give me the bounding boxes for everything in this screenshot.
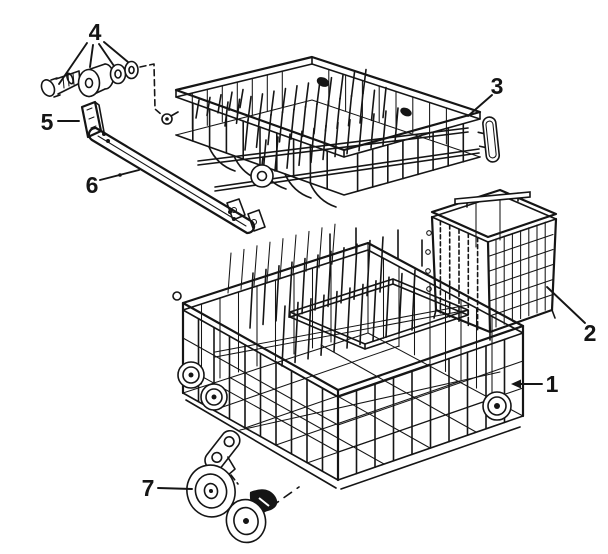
callout-1: 1 [511, 371, 559, 397]
wire [306, 83, 309, 107]
rack-roller-icon [178, 362, 204, 388]
callout-label: 6 [86, 172, 99, 198]
wire [319, 228, 322, 268]
basket-handle [455, 192, 530, 207]
wire [240, 90, 243, 108]
tine-row [225, 70, 366, 126]
wire [293, 235, 296, 275]
wire [380, 237, 383, 292]
wire [218, 95, 221, 113]
wire [196, 100, 199, 118]
wire [283, 89, 286, 113]
wire [295, 302, 298, 362]
wire [271, 91, 274, 115]
mounting-hardware-group [39, 62, 162, 116]
wire [306, 231, 309, 271]
wire [287, 134, 290, 168]
callout-label: 2 [584, 320, 597, 346]
corner-stud-icon [173, 292, 181, 300]
parts-diagram: 4 5 6 3 2 1 7 [0, 0, 608, 554]
wire [280, 239, 283, 279]
wire [308, 299, 311, 359]
callout-label: 7 [142, 475, 155, 501]
mount-stud-icon [162, 112, 178, 124]
wire [334, 292, 337, 352]
wire [340, 75, 343, 99]
wire [289, 262, 292, 317]
rack-roller-icon [201, 384, 227, 410]
rack-roller-icon [483, 392, 511, 420]
assembly-dashed-line [140, 64, 162, 115]
callout-label: 4 [89, 19, 102, 45]
callout-label: 5 [41, 109, 54, 135]
wire [302, 259, 305, 314]
wire [245, 120, 248, 150]
callout-6: 6 [86, 170, 139, 198]
arrowhead-icon [511, 380, 521, 389]
wire [303, 107, 306, 137]
callout-label: 3 [491, 73, 504, 99]
rail-end-cap [477, 116, 500, 163]
wire [260, 94, 263, 118]
upper-rack-group [162, 57, 500, 207]
wire [257, 117, 260, 147]
exploded-view-drawing: 4 5 6 3 2 1 7 [0, 0, 608, 554]
wire [276, 266, 279, 321]
wire [229, 92, 232, 110]
washer-icon [111, 65, 126, 84]
callout-label: 1 [546, 371, 559, 397]
roller-icon [79, 64, 114, 97]
wheel-assembly-group [182, 427, 299, 546]
wire [282, 306, 285, 366]
track-rail-group [89, 128, 265, 233]
wire [352, 72, 355, 96]
wire [294, 86, 297, 110]
tine-row [196, 90, 243, 118]
wire [332, 224, 335, 264]
callout-5: 5 [41, 109, 79, 135]
washer-icon [125, 62, 138, 79]
wire [315, 255, 318, 310]
rack-roller-icon [251, 157, 273, 187]
callout-7: 7 [142, 475, 192, 501]
wire [291, 109, 294, 139]
